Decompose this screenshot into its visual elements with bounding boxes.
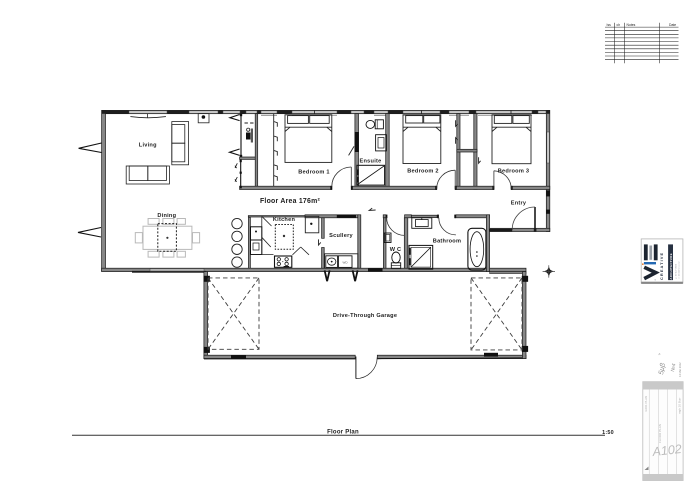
svg-text:Bedroom 2: Bedroom 2	[407, 169, 438, 175]
svg-text:Dining: Dining	[157, 213, 176, 219]
svg-text:Kitchen: Kitchen	[273, 217, 296, 223]
svg-text:WD: WD	[343, 261, 349, 265]
svg-text:4-001 PLAN: 4-001 PLAN	[644, 396, 648, 412]
svg-text:Iss: Iss	[607, 23, 612, 27]
svg-text:Entry: Entry	[511, 201, 527, 207]
svg-text:FLOOR PLAN: FLOOR PLAN	[658, 424, 662, 443]
svg-text:ch: ch	[617, 23, 621, 27]
svg-text:Scullery: Scullery	[329, 233, 353, 239]
svg-text:Drive-Through Garage: Drive-Through Garage	[333, 313, 397, 319]
svg-text:14 Mar 2022: 14 Mar 2022	[678, 362, 682, 377]
svg-text:ARCHITECTURE: ARCHITECTURE	[669, 253, 673, 279]
svg-text:e: info@me.co.nz: e: info@me.co.nz	[679, 261, 681, 278]
svg-text:Bedroom 3: Bedroom 3	[498, 169, 529, 175]
svg-text:Notes: Notes	[627, 23, 636, 27]
svg-text:Date: Date	[669, 23, 676, 27]
svg-text:W C: W C	[390, 247, 402, 253]
svg-text:Living: Living	[139, 143, 157, 149]
svg-text:Floor Area 176m²: Floor Area 176m²	[260, 198, 320, 205]
svg-text:p: 09 427 9824: p: 09 427 9824	[676, 263, 678, 278]
svg-text:CREATIVE: CREATIVE	[659, 252, 664, 280]
svg-text:Bedroom 1: Bedroom 1	[298, 170, 329, 176]
svg-text:Ensuite: Ensuite	[360, 159, 382, 165]
svg-text:Bathroom: Bathroom	[433, 238, 461, 244]
svg-text:mgh 10 Burr: mgh 10 Burr	[678, 397, 682, 414]
svg-text:1:50: 1:50	[602, 430, 614, 436]
svg-text:Floor Plan: Floor Plan	[327, 430, 359, 436]
